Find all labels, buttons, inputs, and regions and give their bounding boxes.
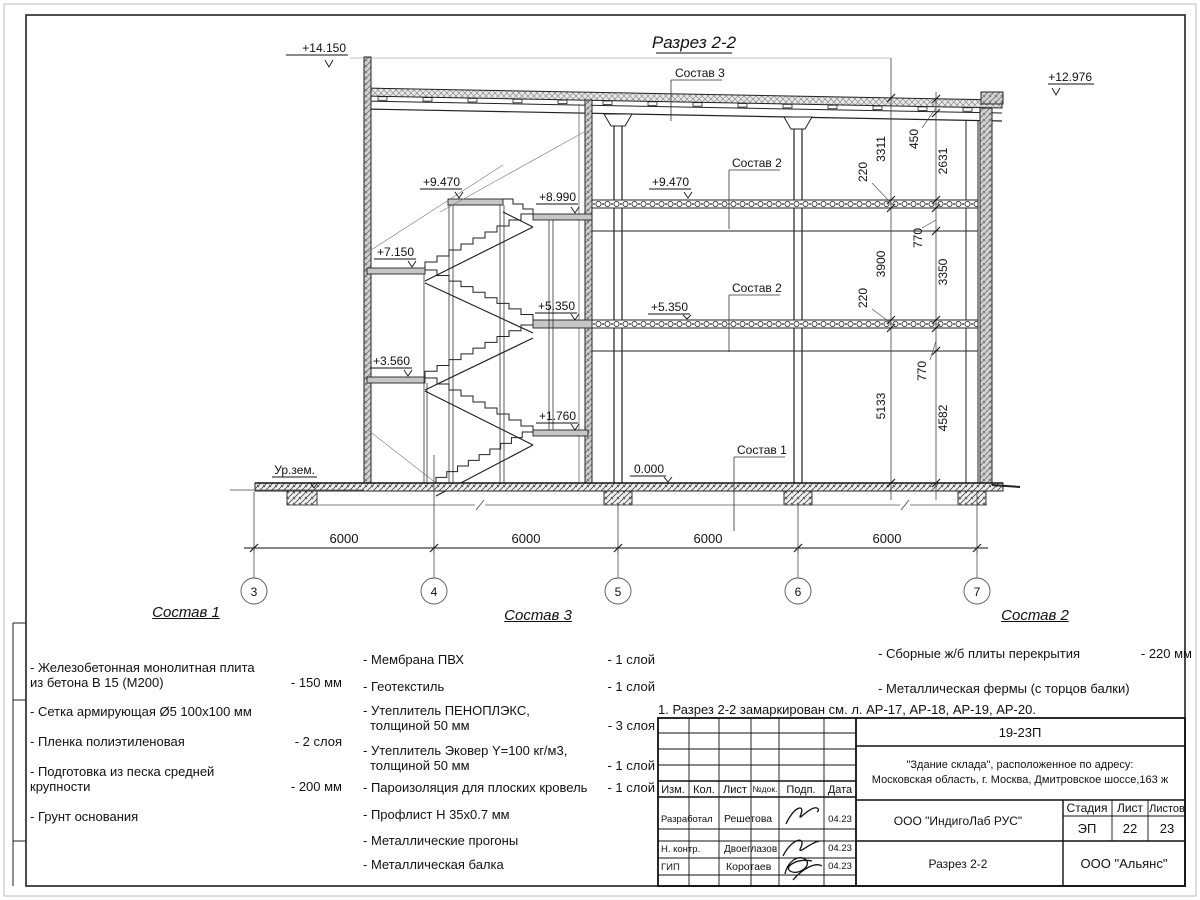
elevation-mark: +5.350: [535, 299, 579, 320]
sheets-value: 23: [1160, 821, 1174, 836]
list-item: - Профлист Н 35х0.7 мм: [363, 807, 655, 822]
list-item: - Пароизоляция для плоских кровель - 1 с…: [363, 780, 655, 795]
person-name: Решетова: [724, 813, 772, 825]
legend-sostav-2: Состав 2 - Сборные ж/б плиты перекрытия …: [878, 607, 1192, 707]
dim-label: 6000: [330, 531, 359, 546]
list-item: - Металлическая балка: [363, 857, 655, 872]
svg-text:+12.976: +12.976: [1048, 70, 1092, 84]
svg-text:Состав 2: Состав 2: [732, 281, 782, 295]
list-item: - Утеплитель Эковер Y=100 кг/м3,толщиной…: [363, 743, 655, 773]
dim-label: 3900: [874, 250, 888, 277]
role-label: Разработал: [661, 814, 713, 825]
sheet-value: 22: [1123, 821, 1137, 836]
svg-text:+7.150: +7.150: [377, 245, 414, 259]
dim-label: 6000: [873, 531, 902, 546]
axis-label: 6: [795, 585, 802, 599]
roof-assembly: [364, 88, 1002, 121]
foundation: [604, 491, 632, 505]
dim-label: 220: [856, 162, 870, 182]
vertical-dimensions: 3311 220 3900 220 5133 450 2631 770 3350…: [350, 58, 950, 500]
role-label: ГИП: [661, 862, 680, 873]
foundation: [287, 491, 317, 505]
svg-text:+1.760: +1.760: [539, 409, 576, 423]
person-name: Коротаев: [726, 861, 772, 873]
stage-value: ЭП: [1078, 821, 1097, 836]
list-item: - Подготовка из песка среднейкрупности -…: [30, 764, 342, 794]
dim-label: 3350: [936, 258, 950, 285]
drawing-title: Разрез 2-2: [652, 33, 737, 52]
elevation-mark: +14.150: [286, 41, 348, 67]
dim-label: 220: [856, 288, 870, 308]
dim-label: 4582: [936, 404, 950, 431]
list-item: - Металлическая фермы (с торцов балки): [878, 681, 1192, 696]
parapet-cap: [981, 92, 1003, 104]
legend-title: Состав 2: [878, 607, 1192, 624]
ground: [230, 483, 1020, 510]
signature: [783, 840, 822, 880]
elevation-mark: +8.990: [536, 190, 579, 213]
axis-bubbles: 3 4 5 6 7: [241, 578, 990, 604]
list-item: - Металлические прогоны: [363, 833, 655, 848]
axis-label: 5: [615, 585, 622, 599]
list-item: - Геотекстиль - 1 слой: [363, 679, 655, 694]
svg-text:Состав 1: Состав 1: [737, 443, 787, 457]
middle-wall: [585, 100, 592, 483]
svg-text:+14.150: +14.150: [302, 41, 346, 55]
axis-label: 3: [251, 585, 258, 599]
signature: [786, 808, 818, 824]
project-code: 19-23П: [999, 725, 1042, 740]
floor-slabs: [533, 200, 978, 351]
list-item: - Мембрана ПВХ - 1 слой: [363, 652, 655, 667]
bottom-dimensions: 6000 6000 6000 6000 3 4 5 6 7: [241, 455, 990, 604]
axis-label: 4: [431, 585, 438, 599]
svg-text:+5.350: +5.350: [651, 300, 688, 314]
legend-title: Состав 1: [30, 604, 342, 621]
stair-slab-8990: [533, 214, 592, 220]
elevation-mark: +7.150: [374, 245, 416, 267]
svg-text:+3.560: +3.560: [373, 354, 410, 368]
list-item: - Грунт основания: [30, 809, 342, 824]
date: 04.23: [828, 814, 852, 825]
legend-sostav-3: Состав 3 - Мембрана ПВХ - 1 слой - Геоте…: [363, 607, 655, 877]
list-item: - Пленка полиэтиленовая - 2 слоя: [30, 734, 342, 749]
foundation: [958, 491, 986, 505]
object-line1: "Здание склада", расположенное по адресу…: [907, 759, 1134, 771]
signatures: [783, 808, 822, 880]
elevation-mark: +12.976: [1048, 70, 1094, 95]
dim-label: 770: [911, 228, 925, 248]
dim-label: 6000: [512, 531, 541, 546]
stage-header: Стадия: [1067, 801, 1108, 815]
date: 04.23: [828, 843, 852, 854]
list-item: - Железобетонная монолитная плитаиз бето…: [30, 660, 342, 690]
svg-text:+9.470: +9.470: [423, 175, 460, 189]
svg-text:Состав 3: Состав 3: [675, 66, 725, 80]
dim-label: 6000: [694, 531, 723, 546]
svg-text:Ур.зем.: Ур.зем.: [274, 463, 315, 477]
callout: Состав 2: [729, 156, 782, 229]
elevation-mark: +1.760: [536, 409, 579, 430]
callout: Состав 2: [729, 281, 782, 352]
right-wall: [980, 108, 992, 490]
col-header: Подп.: [786, 784, 815, 796]
layer-callouts: Состав 3 Состав 2 Состав 2 Состав 1: [671, 66, 787, 531]
building-section: [230, 57, 1020, 510]
columns: [604, 114, 978, 483]
elevation-mark: +3.560: [370, 354, 412, 376]
svg-text:Состав 2: Состав 2: [732, 156, 782, 170]
axis-label: 7: [974, 585, 981, 599]
role-label: Н. контр.: [661, 844, 700, 855]
elevation-mark: +9.470: [649, 175, 692, 198]
title-block: 19-23П "Здание склада", расположенное по…: [658, 718, 1185, 886]
legend-title: Состав 3: [363, 607, 655, 624]
svg-text:0.000: 0.000: [634, 462, 664, 476]
col-header: Изм.: [661, 784, 685, 796]
foundation: [784, 491, 812, 505]
dim-label: 3311: [874, 136, 888, 162]
note-text: 1. Разрез 2-2 замаркирован см. л. АР-17,…: [658, 702, 1198, 717]
elevation-mark: +9.470: [420, 175, 463, 198]
elevation-mark: 0.000: [630, 462, 672, 482]
list-item: - Сборные ж/б плиты перекрытия - 220 мм: [878, 646, 1192, 661]
col-header: Дата: [828, 784, 853, 796]
svg-text:+9.470: +9.470: [652, 175, 689, 189]
date: 04.23: [828, 861, 852, 872]
col-header: Лист: [723, 784, 747, 796]
org-name: ООО "ИндигоЛаб РУС": [894, 814, 1022, 828]
dim-label: 2631: [936, 147, 950, 174]
dim-label: 450: [907, 129, 921, 149]
drawing-sheet: Разрез 2-2: [0, 0, 1200, 900]
object-line2: Московская область, г. Москва, Дмитровск…: [872, 774, 1169, 786]
svg-text:+5.350: +5.350: [538, 299, 575, 313]
list-item: - Утеплитель ПЕНОПЛЭКС,толщиной 50 мм - …: [363, 703, 655, 733]
staircase: [367, 132, 588, 496]
stair-slab-5350: [533, 320, 592, 328]
sheets-header: Листов: [1149, 803, 1185, 815]
col-header: Кол.: [693, 784, 715, 796]
dim-label: 770: [915, 361, 929, 381]
list-item: - Сетка армирующая Ø5 100x100 мм: [30, 704, 342, 719]
company-name: ООО "Альянс": [1081, 856, 1168, 871]
elevation-mark: +5.350: [648, 300, 691, 319]
legend-sostav-1: Состав 1 - Железобетонная монолитная пли…: [30, 604, 342, 844]
person-name: Двоеглазов: [724, 844, 777, 855]
sheet-header: Лист: [1117, 801, 1144, 815]
walls: [364, 57, 1003, 490]
drawing-name: Разрез 2-2: [929, 857, 988, 871]
svg-text:+8.990: +8.990: [539, 190, 576, 204]
dim-label: 5133: [874, 392, 888, 419]
col-header: №док.: [753, 784, 778, 794]
